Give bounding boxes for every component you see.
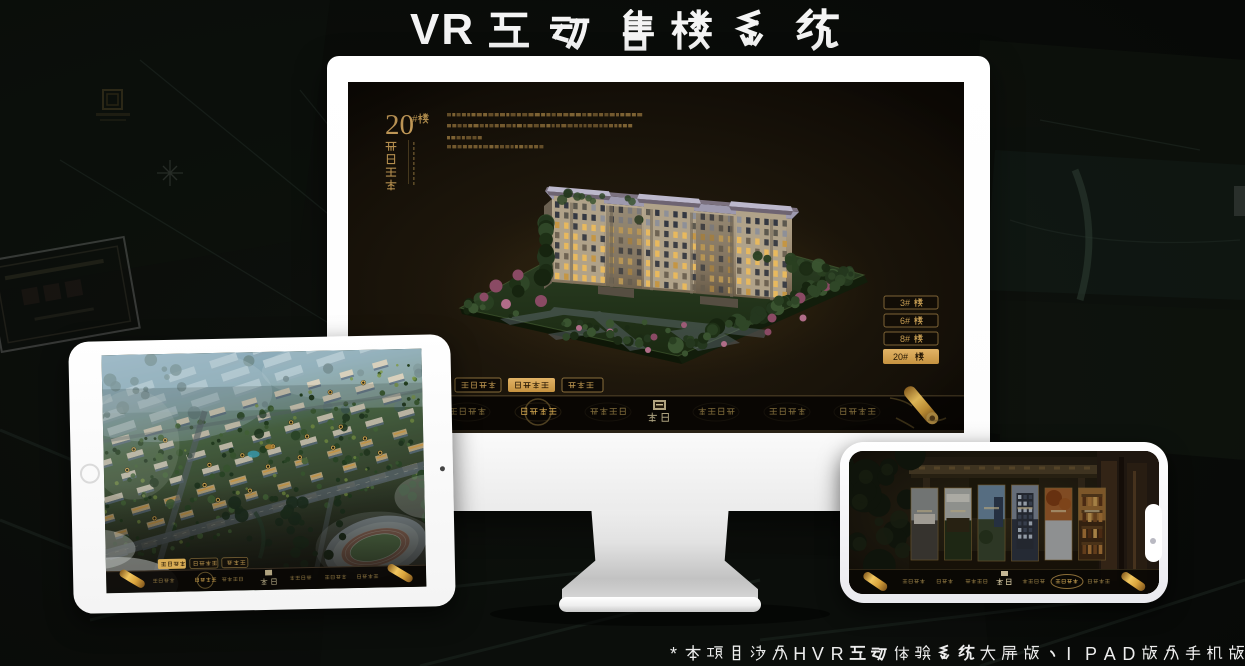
svg-text:V: V: [812, 644, 824, 664]
svg-text:I: I: [1066, 644, 1071, 664]
svg-text:*: *: [670, 644, 677, 664]
svg-text:A: A: [1104, 644, 1116, 664]
svg-text:VR: VR: [410, 5, 475, 54]
svg-text:H: H: [793, 644, 806, 664]
svg-text:R: R: [831, 644, 844, 664]
svg-text:D: D: [1122, 644, 1135, 664]
svg-text:P: P: [1085, 644, 1097, 664]
